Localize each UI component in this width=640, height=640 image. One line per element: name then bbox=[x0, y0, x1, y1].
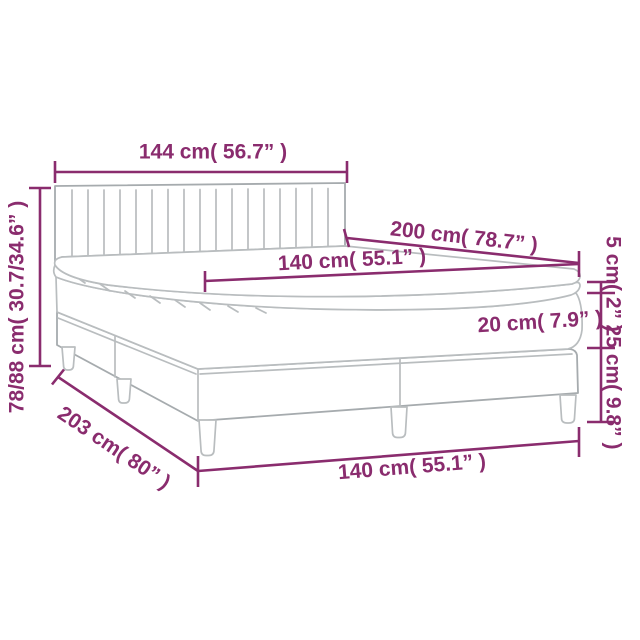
dimension-headboard-width: 144 cm( 56.7” ) bbox=[55, 141, 347, 184]
bed-dimension-diagram: 144 cm( 56.7” ) 78/88 cm( 30.7/34.6” ) 2… bbox=[0, 0, 640, 640]
dim-line-height bbox=[29, 188, 51, 366]
dimension-base-width: 140 cm( 55.1” ) bbox=[198, 427, 579, 484]
leg-head-left bbox=[62, 347, 75, 370]
headboard-width-label: 144 cm( 56.7” ) bbox=[139, 141, 287, 164]
base-width-label: 140 cm( 55.1” ) bbox=[337, 450, 487, 485]
dimension-height: 78/88 cm( 30.7/34.6” ) bbox=[6, 188, 52, 413]
leg-front-middle bbox=[391, 407, 407, 438]
leg-front-corner bbox=[199, 420, 216, 456]
leg-side-middle bbox=[117, 379, 131, 403]
topper-thickness-label: 5 cm( 2” ) bbox=[602, 236, 625, 332]
base-height-label: 25 cm( 9.8” ) bbox=[602, 325, 625, 450]
height-label: 78/88 cm( 30.7/34.6” ) bbox=[6, 201, 29, 413]
diagram-canvas: 144 cm( 56.7” ) 78/88 cm( 30.7/34.6” ) 2… bbox=[0, 0, 640, 640]
dim-line-headboard-width bbox=[55, 161, 347, 183]
leg-foot-right bbox=[560, 395, 576, 423]
